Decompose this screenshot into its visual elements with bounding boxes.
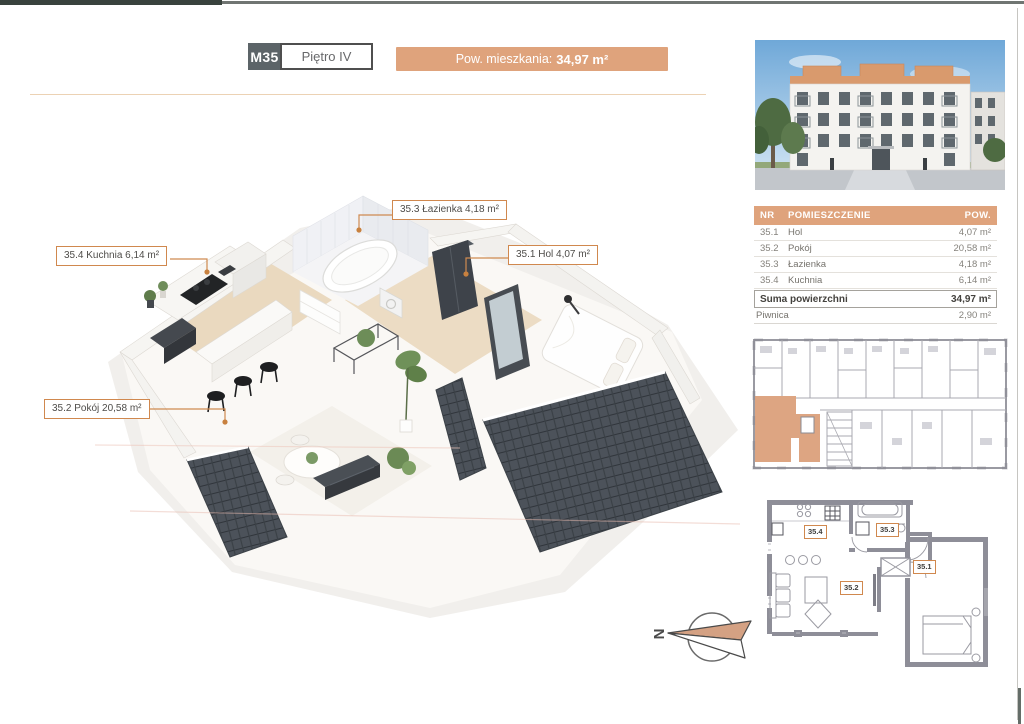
table-row: 35.4 Kuchnia 6,14 m² xyxy=(754,273,997,289)
plan-label-kuchnia: 35.4 Kuchnia 6,14 m² xyxy=(56,246,167,266)
compass-north-label: N xyxy=(651,629,668,640)
scan-artifact-right-line xyxy=(1017,8,1018,720)
row-nr: 35.2 xyxy=(754,243,788,254)
unit-label-lazienka: 35.3 xyxy=(876,523,899,537)
unit-label-hol: 35.1 xyxy=(913,560,936,574)
col-header-nr: NR xyxy=(754,210,788,221)
row-name: Łazienka xyxy=(788,259,959,270)
apartment-area-banner: Pow. mieszkania: 34,97 m² xyxy=(396,47,668,71)
row-area: 4,18 m² xyxy=(959,259,997,270)
unit-furniture xyxy=(770,502,980,662)
table-row: 35.3 Łazienka 4,18 m² xyxy=(754,257,997,273)
row-name: Hol xyxy=(788,227,959,238)
summary-value: 34,97 m² xyxy=(951,294,996,305)
scan-artifact-top-line xyxy=(222,1,1024,4)
row-area: 20,58 m² xyxy=(954,243,998,254)
floor-overview-plan xyxy=(752,338,1008,470)
row-name: Pokój xyxy=(788,243,954,254)
floorplan-sheet: { "header": { "unit": "M35", "floor": "P… xyxy=(0,0,1024,724)
building-exterior-render xyxy=(755,40,1005,190)
unit-label-pokoj: 35.2 xyxy=(840,581,863,595)
unit-id-badge: M35 xyxy=(248,43,281,70)
area-banner-value: 34,97 m² xyxy=(556,52,608,67)
table-basement-row: Piwnica 2,90 m² xyxy=(754,308,997,324)
header-divider-line xyxy=(30,94,706,95)
col-header-room: POMIESZCZENIE xyxy=(788,210,965,221)
floor-lamp-shade xyxy=(564,295,572,303)
unit-label-kuchnia: 35.4 xyxy=(804,525,827,539)
floor-text: Piętro IV xyxy=(302,49,352,64)
living-plant-b xyxy=(402,461,416,475)
scan-artifact-top-bar xyxy=(0,0,222,5)
table-row: 35.1 Hol 4,07 m² xyxy=(754,225,997,241)
basement-value: 2,90 m² xyxy=(959,310,997,321)
scan-artifact-right-line-dark xyxy=(1018,688,1021,724)
row-nr: 35.1 xyxy=(754,227,788,238)
unit-2d-plan-wrap: 35.4 35.3 35.1 35.2 xyxy=(763,496,1005,696)
row-nr: 35.4 xyxy=(754,275,788,286)
plan-label-lazienka: 35.3 Łazienka 4,18 m² xyxy=(392,200,507,220)
unit-id-text: M35 xyxy=(250,49,278,65)
summary-label: Suma powierzchni xyxy=(755,294,848,305)
compass: N xyxy=(650,598,780,682)
row-name: Kuchnia xyxy=(788,275,959,286)
table-summary-row: Suma powierzchni 34,97 m² xyxy=(754,290,997,308)
floor-badge: Piętro IV xyxy=(280,43,373,70)
row-area: 4,07 m² xyxy=(959,227,997,238)
basement-label: Piwnica xyxy=(754,310,789,321)
plan-label-pokoj: 35.2 Pokój 20,58 m² xyxy=(44,399,150,419)
row-nr: 35.3 xyxy=(754,259,788,270)
row-area: 6,14 m² xyxy=(959,275,997,286)
area-table: NR POMIESZCZENIE POW. 35.1 Hol 4,07 m² 3… xyxy=(754,206,997,324)
area-banner-label: Pow. mieszkania: xyxy=(456,52,553,66)
plan-label-hol: 35.1 Hol 4,07 m² xyxy=(508,245,598,265)
main-building xyxy=(790,64,970,170)
area-table-header: NR POMIESZCZENIE POW. xyxy=(754,206,997,225)
table-row: 35.2 Pokój 20,58 m² xyxy=(754,241,997,257)
overview-stairwell xyxy=(827,412,852,466)
col-header-area: POW. xyxy=(965,210,997,221)
console-plant xyxy=(357,329,375,347)
